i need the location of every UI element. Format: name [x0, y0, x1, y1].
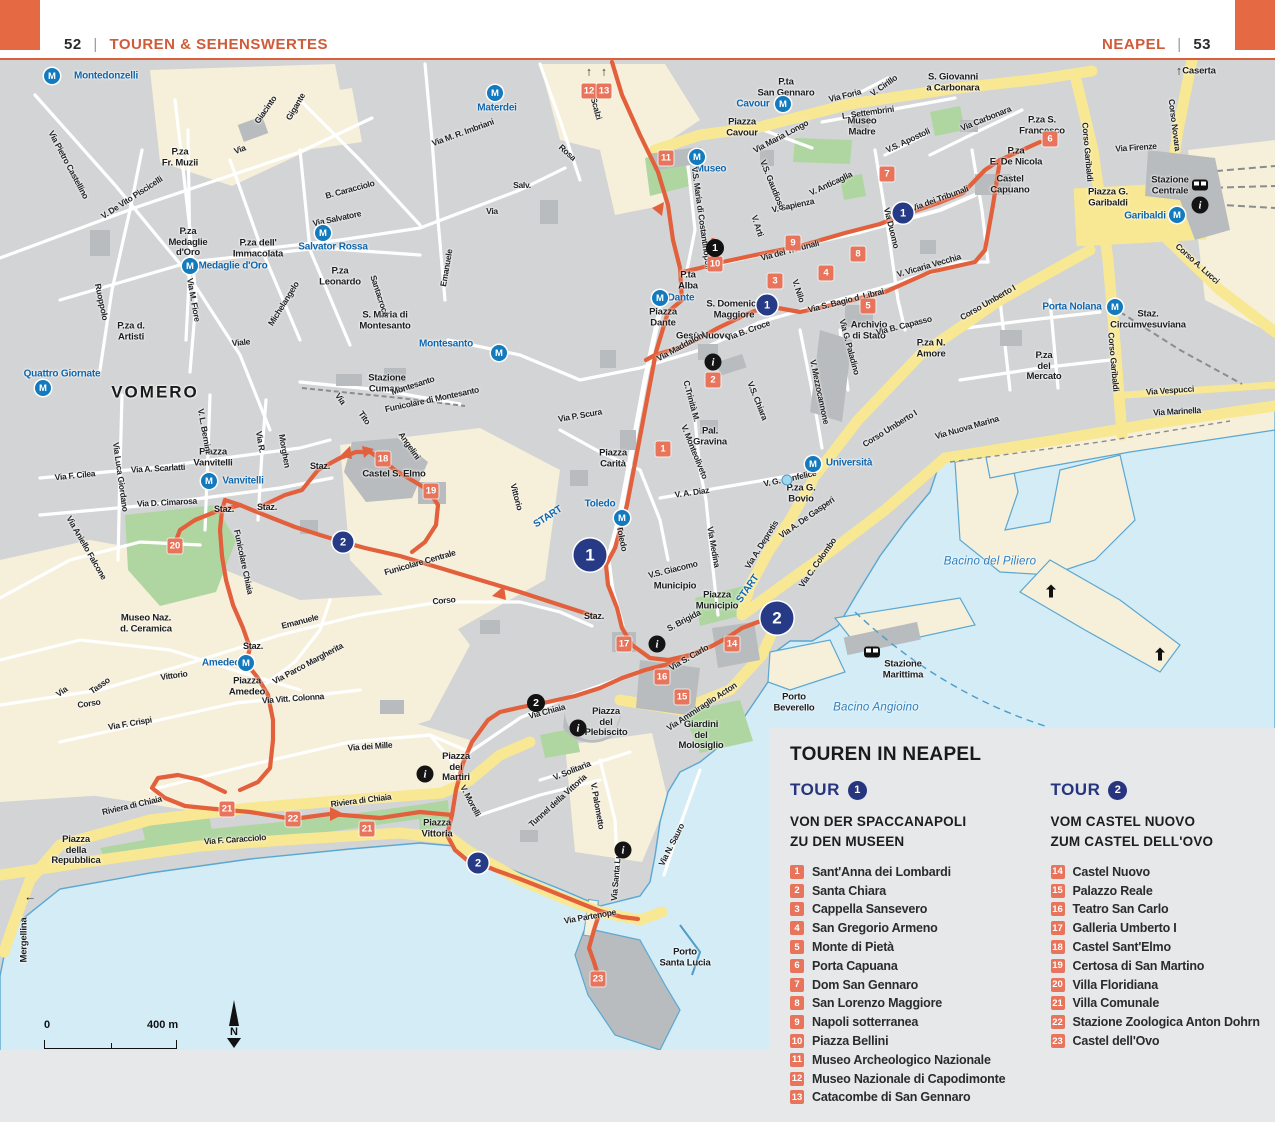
legend-list-item[interactable]: 16 Teatro San Carlo [1051, 900, 1275, 919]
stop-name: Castel Sant'Elmo [1073, 940, 1171, 954]
stop-name: Teatro San Carlo [1073, 902, 1169, 916]
stop-name: Museo Nazionale di Capodimonte [812, 1072, 1005, 1086]
stop-number-chip: 21 [1051, 996, 1065, 1010]
legend-list-item[interactable]: 6 Porta Capuana [790, 956, 1015, 975]
legend-list-item[interactable]: 9 Napoli sotterranea [790, 1013, 1015, 1032]
legend-list-item[interactable]: 10 Piazza Bellini [790, 1032, 1015, 1051]
tour1-label: TOUR [790, 780, 840, 800]
stop-name: Catacombe di San Gennaro [812, 1090, 970, 1104]
tour1-heading: TOUR 1 [790, 780, 1015, 800]
tour1-subtitle: VON DER SPACCANAPOLI ZU DEN MUSEEN [790, 812, 1015, 853]
stop-number-chip: 16 [1051, 902, 1065, 916]
stop-number-chip: 8 [790, 996, 804, 1010]
tour2-subtitle-line2: ZUM CASTEL DELL'OVO [1051, 834, 1214, 849]
legend-list-item[interactable]: 13 Catacombe di San Gennaro [790, 1088, 1015, 1107]
stop-name: Santa Chiara [812, 884, 886, 898]
stop-number-chip: 3 [790, 902, 804, 916]
stop-number-chip: 13 [790, 1090, 804, 1104]
legend-title: TOUREN IN NEAPEL [790, 744, 1275, 766]
legend-list-item[interactable]: 7 Dom San Gennaro [790, 975, 1015, 994]
legend-list-item[interactable]: 20 Villa Floridiana [1051, 975, 1275, 994]
page-header: 52 | TOUREN & SEHENSWERTES NEAPEL | 53 [0, 0, 1275, 60]
stop-number-chip: 18 [1051, 940, 1065, 954]
tour2-subtitle-line1: VOM CASTEL NUOVO [1051, 814, 1196, 829]
legend-tour1-column: TOUR 1 VON DER SPACCANAPOLI ZU DEN MUSEE… [790, 780, 1015, 1107]
legend-list-item[interactable]: 5 Monte di Pietà [790, 938, 1015, 957]
legend-list-item[interactable]: 11 Museo Archeologico Nazionale [790, 1050, 1015, 1069]
stop-name: San Gregorio Armeno [812, 921, 938, 935]
legend-list-item[interactable]: 18 Castel Sant'Elmo [1051, 938, 1275, 957]
bottom-margin-strip [0, 1050, 770, 1122]
stop-name: Certosa di San Martino [1073, 959, 1205, 973]
stop-number-chip: 22 [1051, 1015, 1065, 1029]
tour2-subtitle: VOM CASTEL NUOVO ZUM CASTEL DELL'OVO [1051, 812, 1275, 853]
legend-list-item[interactable]: 21 Villa Comunale [1051, 994, 1275, 1013]
stop-number-chip: 14 [1051, 865, 1065, 879]
legend-list-item[interactable]: 19 Certosa di San Martino [1051, 956, 1275, 975]
tour1-subtitle-line1: VON DER SPACCANAPOLI [790, 814, 966, 829]
stop-number-chip: 23 [1051, 1034, 1065, 1048]
stop-name: Galleria Umberto I [1073, 921, 1177, 935]
stop-number-chip: 1 [790, 865, 804, 879]
stop-name: Museo Archeologico Nazionale [812, 1053, 991, 1067]
tour1-stop-list: 1 Sant'Anna dei Lombardi 2 Santa Chiara … [790, 863, 1015, 1107]
map-title: NEAPEL [1102, 36, 1166, 53]
stop-number-chip: 11 [790, 1053, 804, 1067]
tour2-label: TOUR [1051, 780, 1101, 800]
stop-number-chip: 15 [1051, 884, 1065, 898]
chapter-title: TOUREN & SEHENSWERTES [109, 36, 328, 53]
legend-list-item[interactable]: 12 Museo Nazionale di Capodimonte [790, 1069, 1015, 1088]
tour2-number-badge: 2 [1108, 781, 1127, 800]
stop-name: Stazione Zoologica Anton Dohrn [1073, 1015, 1260, 1029]
legend-list-item[interactable]: 14 Castel Nuovo [1051, 863, 1275, 882]
legend-list-item[interactable]: 1 Sant'Anna dei Lombardi [790, 863, 1015, 882]
legend-list-item[interactable]: 4 San Gregorio Armeno [790, 919, 1015, 938]
stop-number-chip: 19 [1051, 959, 1065, 973]
legend-tour2-column: TOUR 2 VOM CASTEL NUOVO ZUM CASTEL DELL'… [1051, 780, 1275, 1107]
legend-list-item[interactable]: 17 Galleria Umberto I [1051, 919, 1275, 938]
page: 52 | TOUREN & SEHENSWERTES NEAPEL | 53 [0, 0, 1275, 1122]
stop-number-chip: 10 [790, 1034, 804, 1048]
header-right-accent-square [1235, 0, 1275, 50]
legend-list-item[interactable]: 22 Stazione Zoologica Anton Dohrn [1051, 1013, 1275, 1032]
legend-list-item[interactable]: 2 Santa Chiara [790, 881, 1015, 900]
tour1-number-badge: 1 [848, 781, 867, 800]
stop-number-chip: 2 [790, 884, 804, 898]
stop-name: Castel dell'Ovo [1073, 1034, 1160, 1048]
page-number-right: 53 [1193, 36, 1211, 53]
stop-name: Castel Nuovo [1073, 865, 1150, 879]
legend-list-item[interactable]: 3 Cappella Sansevero [790, 900, 1015, 919]
stop-number-chip: 6 [790, 959, 804, 973]
stop-number-chip: 9 [790, 1015, 804, 1029]
stop-number-chip: 7 [790, 978, 804, 992]
stop-number-chip: 12 [790, 1072, 804, 1086]
header-left: 52 | TOUREN & SEHENSWERTES [64, 36, 328, 53]
tour-legend-panel: TOUREN IN NEAPEL TOUR 1 VON DER SPACCANA… [770, 728, 1275, 1122]
stop-name: Porta Capuana [812, 959, 898, 973]
stop-number-chip: 5 [790, 940, 804, 954]
stop-name: Palazzo Reale [1073, 884, 1153, 898]
stop-name: Napoli sotterranea [812, 1015, 918, 1029]
stop-number-chip: 20 [1051, 978, 1065, 992]
tour2-stop-list: 14 Castel Nuovo 15 Palazzo Reale 16 Teat… [1051, 863, 1275, 1051]
page-number-left: 52 [64, 36, 82, 53]
stop-name: Sant'Anna dei Lombardi [812, 865, 951, 879]
stop-name: Dom San Gennaro [812, 978, 918, 992]
header-right: NEAPEL | 53 [1102, 36, 1211, 53]
stop-name: Monte di Pietà [812, 940, 894, 954]
stop-name: San Lorenzo Maggiore [812, 996, 942, 1010]
header-separator: | [1170, 36, 1188, 53]
stop-number-chip: 4 [790, 921, 804, 935]
stop-name: Villa Floridiana [1073, 978, 1158, 992]
tour1-subtitle-line2: ZU DEN MUSEEN [790, 834, 904, 849]
stop-name: Villa Comunale [1073, 996, 1160, 1010]
stop-name: Piazza Bellini [812, 1034, 888, 1048]
header-separator: | [86, 36, 104, 53]
legend-columns: TOUR 1 VON DER SPACCANAPOLI ZU DEN MUSEE… [790, 780, 1275, 1107]
legend-list-item[interactable]: 23 Castel dell'Ovo [1051, 1032, 1275, 1051]
stop-number-chip: 17 [1051, 921, 1065, 935]
header-left-accent-square [0, 0, 40, 50]
tour2-heading: TOUR 2 [1051, 780, 1275, 800]
stop-name: Cappella Sansevero [812, 902, 927, 916]
legend-list-item[interactable]: 8 San Lorenzo Maggiore [790, 994, 1015, 1013]
legend-list-item[interactable]: 15 Palazzo Reale [1051, 881, 1275, 900]
